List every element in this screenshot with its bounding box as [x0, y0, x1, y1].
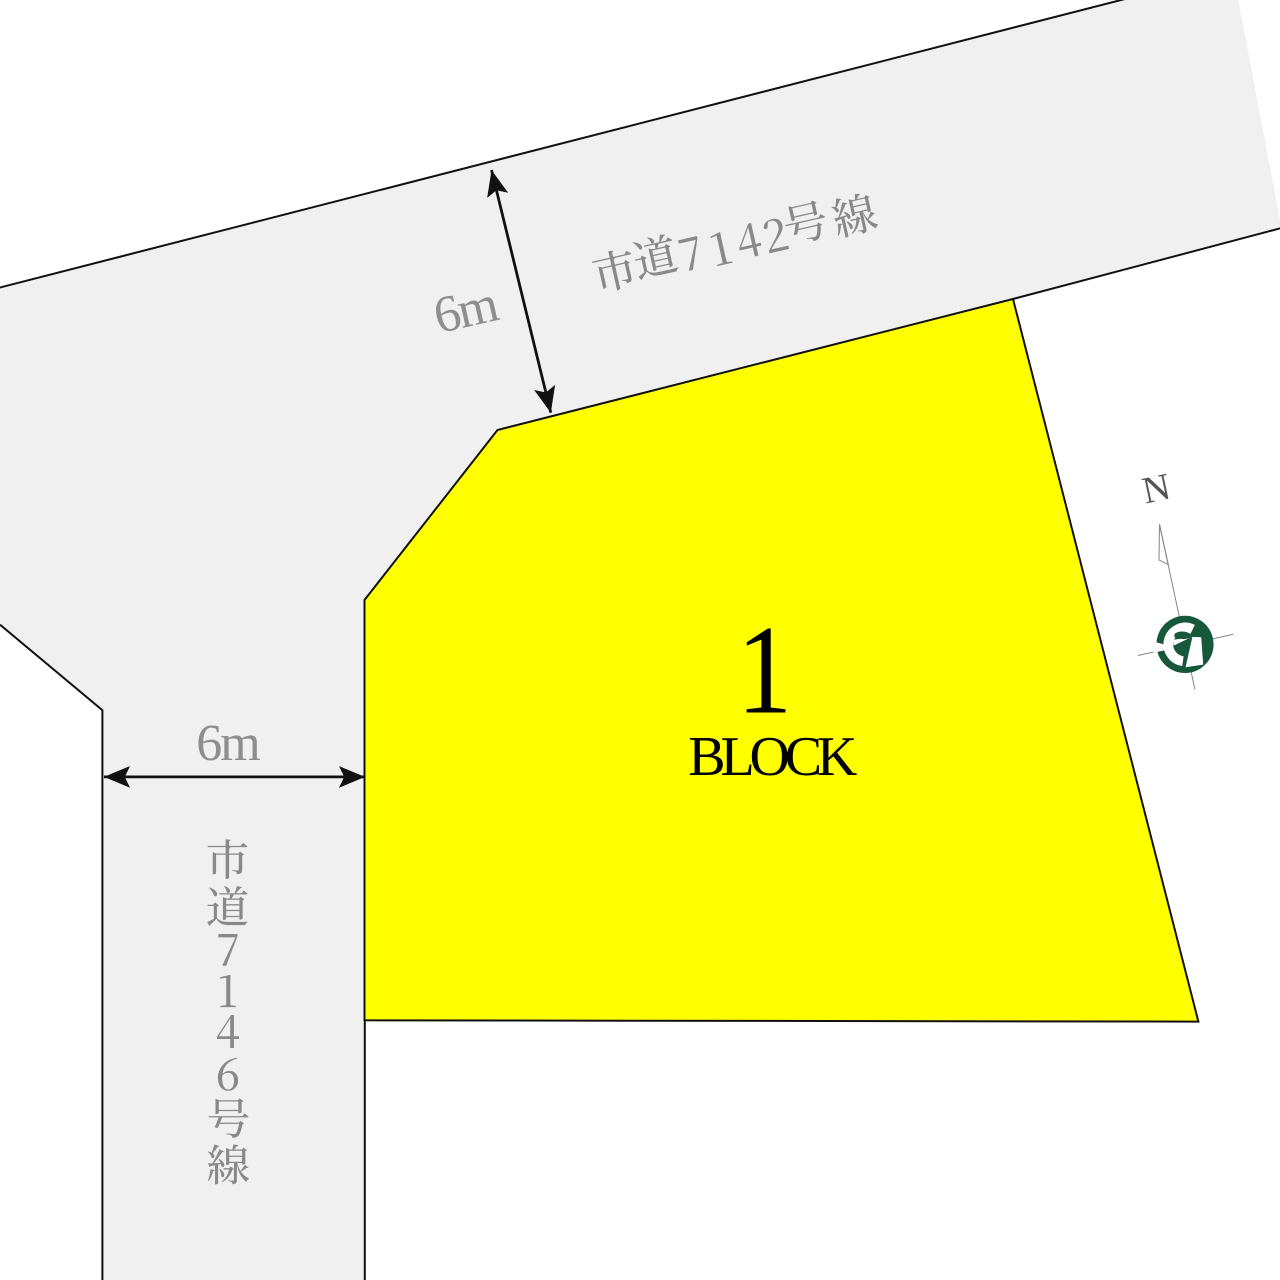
svg-text:6m: 6m: [196, 715, 260, 772]
svg-text:BLOCK: BLOCK: [688, 726, 857, 788]
svg-text:1: 1: [737, 599, 792, 740]
